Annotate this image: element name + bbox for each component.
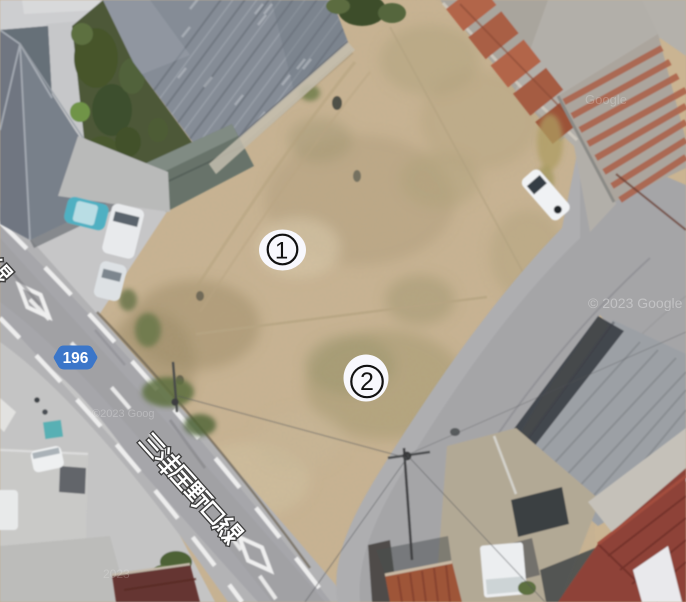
svg-text:2023: 2023 bbox=[103, 567, 130, 581]
svg-text:2: 2 bbox=[360, 368, 374, 396]
svg-text:© 2023 Google: © 2023 Google bbox=[588, 295, 683, 311]
svg-text:1: 1 bbox=[275, 238, 288, 265]
svg-text:Google: Google bbox=[585, 92, 627, 107]
svg-text:196: 196 bbox=[63, 350, 89, 367]
svg-text:©2023 Goog: ©2023 Goog bbox=[92, 408, 155, 420]
